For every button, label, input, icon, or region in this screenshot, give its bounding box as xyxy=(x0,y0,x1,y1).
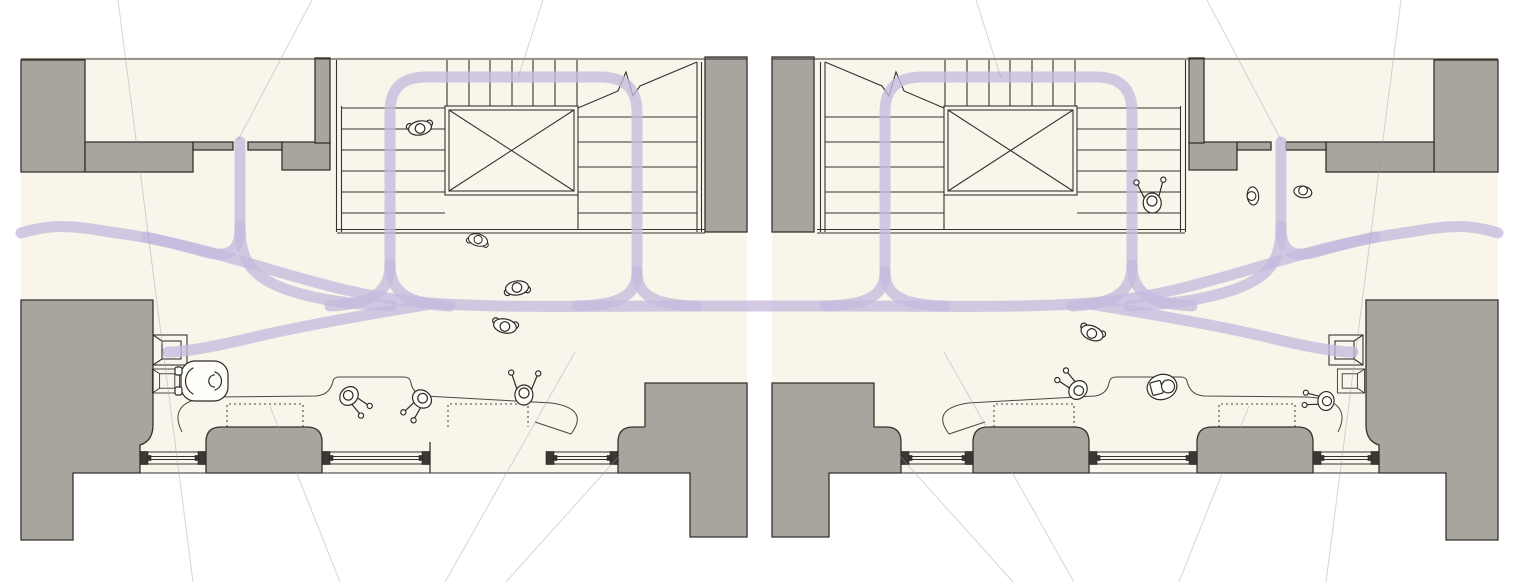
window-mullion-cap xyxy=(140,452,148,465)
window-mullion-cap xyxy=(1313,452,1321,465)
plan-diagram-stage xyxy=(0,0,1527,582)
window-mullion-nub xyxy=(195,456,198,461)
figure-wheelchair-user xyxy=(175,361,228,401)
wall-left-pier-1 xyxy=(206,427,322,473)
window-mullion-nub xyxy=(419,456,422,461)
wall-left-bottom-block xyxy=(21,300,153,540)
wall-right-bottom-block xyxy=(1366,300,1498,540)
window-mullion-nub xyxy=(1321,456,1324,461)
window-mullion-cap xyxy=(546,452,554,465)
window-mullion-cap xyxy=(322,452,330,465)
window-mullion-nub xyxy=(554,456,557,461)
window-mullion-nub xyxy=(148,456,151,461)
wall-right-stair-strip xyxy=(772,57,814,232)
window-mullion-cap xyxy=(1371,452,1379,465)
wall-right-corner xyxy=(1189,142,1237,170)
window-mullion-nub xyxy=(909,456,912,461)
window-mullion-nub xyxy=(330,456,333,461)
window-mullion-nub xyxy=(1368,456,1371,461)
wall-left-lip-a xyxy=(193,142,233,150)
wall-left-stair-strip xyxy=(705,57,747,232)
wall-left-band xyxy=(85,142,193,172)
window-mullion-cap xyxy=(422,452,430,465)
wall-right-room-pier xyxy=(1189,58,1204,143)
window-mullion-cap xyxy=(965,452,973,465)
window-mullion-nub xyxy=(607,456,610,461)
window-mullion-nub xyxy=(962,456,965,461)
wall-right-top-pier xyxy=(1434,60,1498,172)
wall-right-pier-1 xyxy=(1197,427,1313,473)
wall-left-room-pier xyxy=(315,58,330,143)
window-mullion-nub xyxy=(1186,456,1189,461)
wall-right-lip-b xyxy=(1237,142,1271,150)
wall-right-lip-a xyxy=(1286,142,1326,150)
floor-plan-canvas xyxy=(0,0,1527,582)
wall-left-top-pier xyxy=(21,60,85,172)
window-mullion-cap xyxy=(1189,452,1197,465)
wall-left-corner xyxy=(282,142,330,170)
wall-right-band xyxy=(1326,142,1434,172)
window-mullion-cap xyxy=(198,452,206,465)
window-mullion-nub xyxy=(1097,456,1100,461)
wall-left-lip-b xyxy=(248,142,282,150)
window-mullion-cap xyxy=(1089,452,1097,465)
